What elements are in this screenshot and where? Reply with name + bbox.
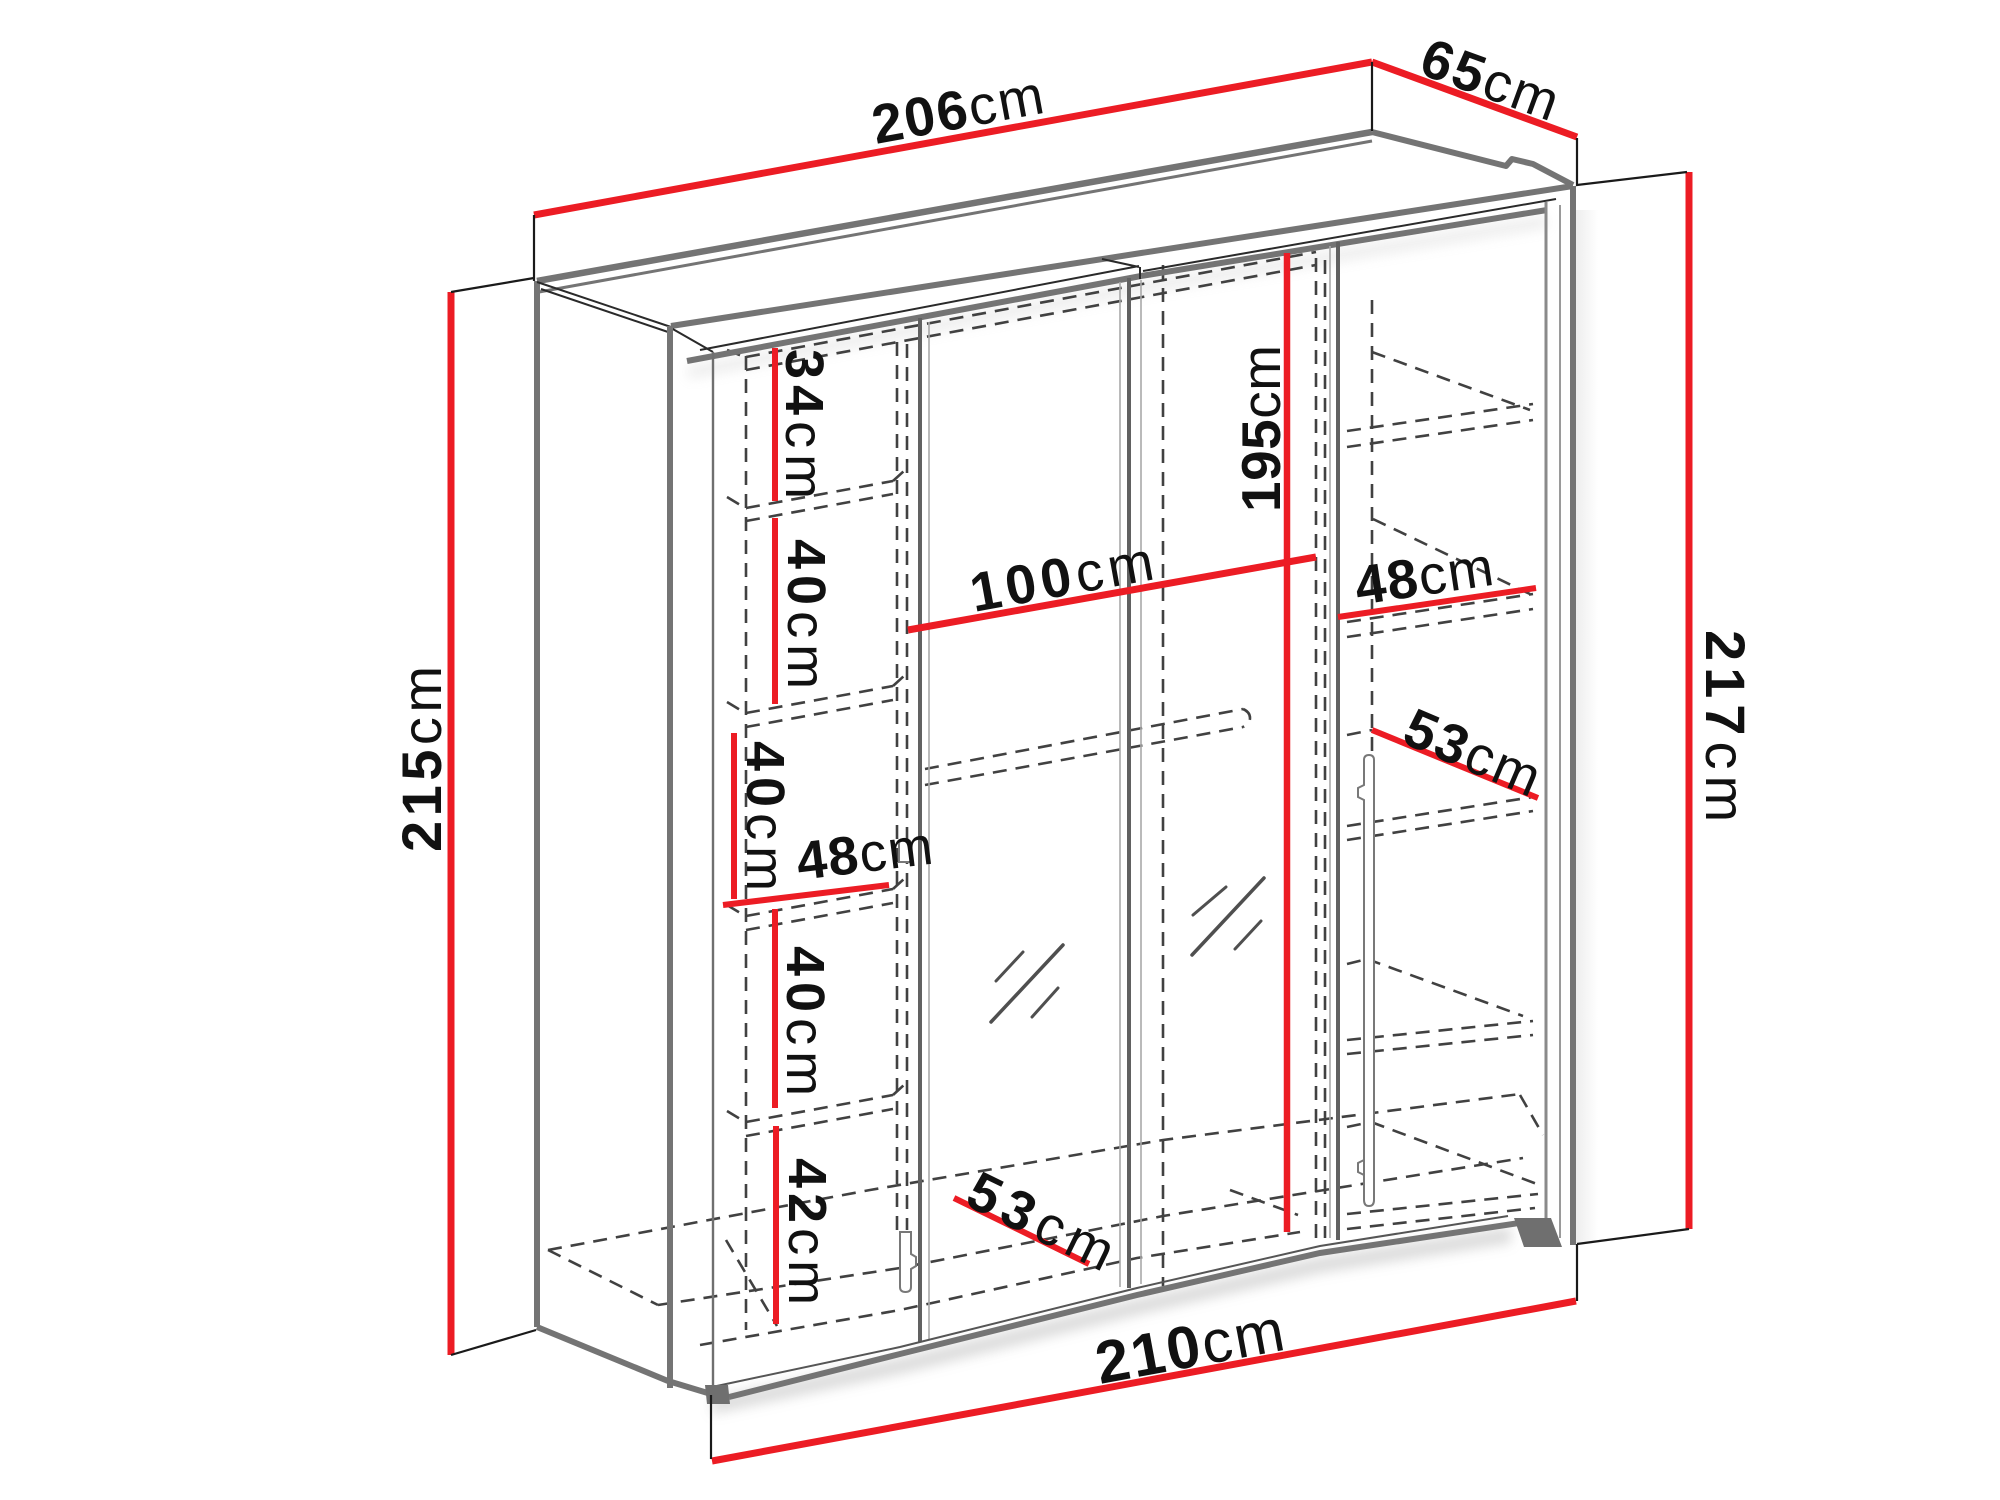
svg-text:42cm: 42cm — [777, 1158, 837, 1310]
svg-text:217cm: 217cm — [1694, 630, 1757, 828]
svg-text:215cm: 215cm — [390, 661, 453, 852]
svg-text:40cm: 40cm — [735, 741, 795, 897]
svg-text:34cm: 34cm — [774, 349, 834, 505]
svg-text:40cm: 40cm — [776, 539, 836, 695]
svg-text:40cm: 40cm — [775, 946, 835, 1102]
svg-text:195cm: 195cm — [1230, 344, 1292, 512]
